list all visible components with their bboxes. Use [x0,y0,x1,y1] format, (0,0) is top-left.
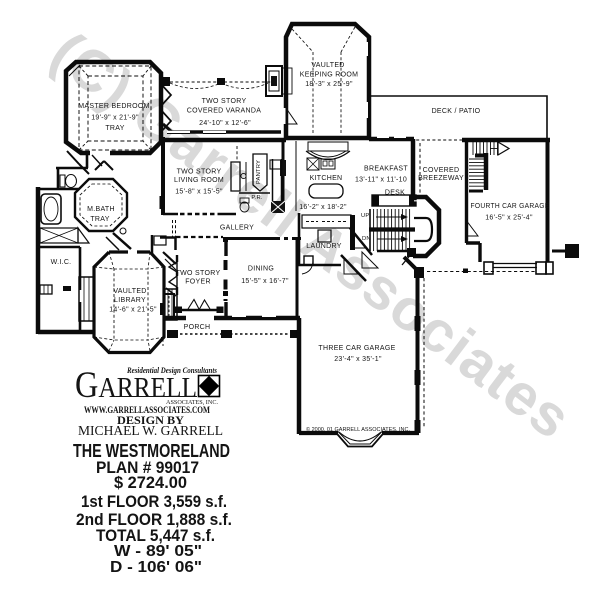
svg-text:D - 106' 06": D - 106' 06" [110,559,202,576]
svg-text:23'-4" x 35'-1": 23'-4" x 35'-1" [334,356,382,363]
svg-text:PANTRY: PANTRY [256,160,262,184]
svg-text:TWO STORY: TWO STORY [177,169,222,176]
svg-text:19'-9" x 21'-9": 19'-9" x 21'-9" [91,115,139,122]
svg-text:13'-11" x 11'-10: 13'-11" x 11'-10 [355,177,407,184]
svg-text:16'-5" x 25'-4": 16'-5" x 25'-4" [485,215,533,222]
svg-text:TRAY: TRAY [105,125,124,132]
svg-text:M.BATH: M.BATH [87,206,115,213]
svg-text:LIBRARY: LIBRARY [114,297,146,304]
svg-text:15'-8" x 15'-5": 15'-8" x 15'-5" [175,189,223,196]
svg-text:14'-6" x 21'-5": 14'-6" x 21'-5" [109,307,157,314]
svg-text:$ 2724.00: $ 2724.00 [114,474,187,492]
svg-text:TRAY: TRAY [90,216,109,223]
svg-text:GALLERY: GALLERY [220,225,254,232]
svg-text:COVERED VARANDA: COVERED VARANDA [187,108,261,115]
svg-text:W - 89' 05": W - 89' 05" [114,543,202,560]
svg-text:DN: DN [362,236,371,242]
svg-text:18'-3" x 25'-9": 18'-3" x 25'-9" [305,81,353,88]
svg-text:UP: UP [361,213,369,219]
svg-text:DINING: DINING [248,266,274,273]
svg-text:BREEZEWAY: BREEZEWAY [418,175,464,182]
svg-text:COVERED: COVERED [423,167,460,174]
svg-text:KITCHEN: KITCHEN [310,175,343,182]
svg-text:FOURTH CAR GARAGE: FOURTH CAR GARAGE [471,203,550,210]
svg-text:BREAKFAST: BREAKFAST [364,166,408,173]
svg-text:THREE CAR GARAGE: THREE CAR GARAGE [318,345,395,352]
svg-text:MICHAEL W. GARRELL: MICHAEL W. GARRELL [78,423,223,438]
svg-text:FOYER: FOYER [185,279,211,286]
svg-text:PORCH: PORCH [184,324,211,331]
svg-text:© 2000, 01 GARRELL ASSOCIATES: © 2000, 01 GARRELL ASSOCIATES, INC. [306,426,410,433]
svg-text:LIVING ROOM: LIVING ROOM [174,177,224,184]
svg-text:P.R.: P.R. [251,195,263,201]
svg-text:LAUNDRY: LAUNDRY [306,243,341,250]
svg-text:KEEPING ROOM: KEEPING ROOM [300,72,358,79]
svg-text:DECK / PATIO: DECK / PATIO [432,108,481,115]
svg-text:16'-2" x 18'-2": 16'-2" x 18'-2" [299,204,347,211]
svg-text:THE WESTMORELAND: THE WESTMORELAND [73,441,230,461]
svg-text:W.I.C.: W.I.C. [51,259,72,266]
svg-text:15'-5" x 16'-7": 15'-5" x 16'-7" [241,278,289,285]
svg-text:TWO STORY: TWO STORY [176,270,221,277]
svg-text:MASTER BEDROOM: MASTER BEDROOM [78,103,149,110]
svg-text:VAULTED: VAULTED [113,288,146,295]
svg-text:VAULTED: VAULTED [311,62,344,69]
svg-text:1st FLOOR 3,559 s.f.: 1st FLOOR 3,559 s.f. [81,493,227,511]
svg-text:TWO STORY: TWO STORY [202,98,247,105]
svg-text:24'-10" x 12'-6": 24'-10" x 12'-6" [199,120,251,127]
